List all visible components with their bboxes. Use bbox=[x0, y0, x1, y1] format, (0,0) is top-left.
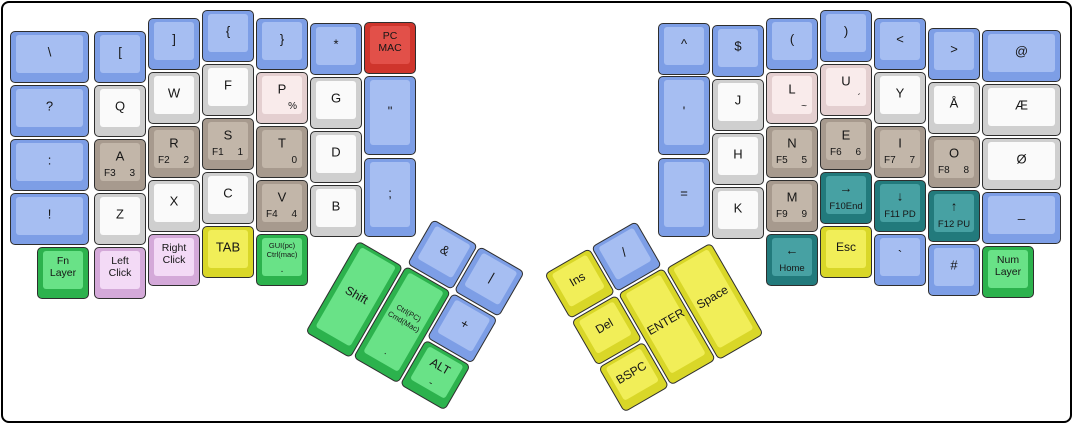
key-legend: H bbox=[719, 147, 757, 162]
key-equals[interactable]: = bbox=[658, 158, 710, 237]
keycap-face: Å bbox=[934, 86, 974, 124]
keycap-face: GUI(pc) Ctrl(mac). bbox=[262, 238, 302, 276]
key-legend: ( bbox=[773, 32, 811, 47]
key-backslash[interactable]: \ bbox=[10, 31, 89, 83]
key-legend: G bbox=[317, 91, 355, 106]
key-right-bracket[interactable]: ] bbox=[148, 18, 200, 70]
key-b[interactable]: B bbox=[310, 185, 362, 237]
keycap-face: \ bbox=[16, 35, 83, 73]
key-sublegend-bottom-right: 4 bbox=[291, 209, 297, 220]
key-legend: Q bbox=[101, 99, 139, 114]
key-sublegend-bottom-left: F5 bbox=[776, 155, 788, 166]
key-sublegend-bottom-center: Home bbox=[772, 263, 812, 274]
key-legend: = bbox=[665, 186, 703, 201]
keycap-face: { bbox=[208, 14, 248, 52]
keycap-face: > bbox=[934, 32, 974, 70]
key-sublegend-bottom-left: F1 bbox=[212, 147, 224, 158]
key-double-quote[interactable]: " bbox=[364, 76, 416, 155]
key-g[interactable]: G bbox=[310, 77, 362, 129]
key-o-slash[interactable]: Ø bbox=[982, 138, 1061, 190]
keycap-face: U´ bbox=[826, 68, 866, 106]
key-sublegend-bottom-right: 3 bbox=[129, 168, 135, 179]
key-tab[interactable]: TAB bbox=[202, 226, 254, 278]
key-legend: ↑ bbox=[935, 199, 973, 214]
keycap-face: PC MAC bbox=[370, 26, 410, 64]
key-sublegend-bottom-left: F3 bbox=[104, 168, 116, 179]
key-legend: Shift bbox=[336, 280, 376, 311]
key-asterisk[interactable]: * bbox=[310, 23, 362, 75]
keycap-face: Y bbox=[880, 76, 920, 114]
keycap-face: ] bbox=[154, 22, 194, 60]
key-colon[interactable]: : bbox=[10, 139, 89, 191]
key-semicolon[interactable]: ; bbox=[364, 158, 416, 237]
key-w[interactable]: W bbox=[148, 72, 200, 124]
key-right-paren[interactable]: ) bbox=[820, 10, 872, 62]
key-legend: ← bbox=[773, 243, 811, 258]
key-f11-pd[interactable]: ↓F11 PD bbox=[874, 180, 926, 232]
key-legend: & bbox=[424, 235, 464, 267]
key-f12-pu[interactable]: ↑F12 PU bbox=[928, 190, 980, 242]
keycap-face: B bbox=[316, 189, 356, 227]
key-legend: Ins bbox=[558, 265, 598, 296]
key-sublegend-bottom-center: . bbox=[366, 337, 406, 367]
key-left-bracket[interactable]: [ bbox=[94, 31, 146, 83]
key-legend: PC MAC bbox=[371, 31, 409, 55]
key-legend: N bbox=[773, 137, 811, 152]
key-l[interactable]: L~ bbox=[766, 72, 818, 124]
keycap-face: Æ bbox=[988, 88, 1055, 126]
keycap-face: < bbox=[880, 22, 920, 60]
key-legend: @ bbox=[989, 44, 1054, 59]
key-at[interactable]: @ bbox=[982, 30, 1061, 82]
key-legend: Space bbox=[693, 282, 733, 313]
key-legend: { bbox=[209, 24, 247, 39]
key-left-click[interactable]: Left Click bbox=[94, 247, 146, 299]
key-legend: BSPC bbox=[612, 358, 652, 389]
key-legend: ↓ bbox=[881, 189, 919, 204]
key-legend: Del bbox=[585, 311, 625, 342]
key-legend: → bbox=[827, 181, 865, 196]
key-legend: ] bbox=[155, 32, 193, 47]
key-legend: \ bbox=[17, 45, 82, 60]
key-less-than[interactable]: < bbox=[874, 18, 926, 70]
key-legend: D bbox=[317, 145, 355, 160]
key-legend: ^ bbox=[665, 37, 703, 52]
key-legend: O bbox=[935, 147, 973, 162]
keycap-face: @ bbox=[988, 34, 1055, 72]
key-j[interactable]: J bbox=[712, 79, 764, 131]
key-y[interactable]: Y bbox=[874, 72, 926, 124]
key-h[interactable]: H bbox=[712, 133, 764, 185]
key-legend: V bbox=[263, 191, 301, 206]
key-num-layer[interactable]: Num Layer bbox=[982, 246, 1034, 298]
keycap-face: : bbox=[16, 143, 83, 181]
key-i[interactable]: IF77 bbox=[874, 126, 926, 178]
keycap-face: Right Click bbox=[154, 238, 194, 276]
key-legend: _ bbox=[989, 206, 1054, 221]
key-legend: P bbox=[263, 83, 301, 98]
keycap-face: ' bbox=[664, 80, 704, 145]
keycap-face: J bbox=[718, 83, 758, 121]
key-legend: | bbox=[471, 262, 511, 294]
keycap-face: G bbox=[316, 81, 356, 119]
key-legend: Esc bbox=[827, 241, 865, 255]
key-apostrophe[interactable]: ' bbox=[658, 76, 710, 155]
key-c[interactable]: C bbox=[202, 172, 254, 224]
keycap-face: Z bbox=[100, 197, 140, 235]
keycap-face: K bbox=[718, 191, 758, 229]
key-caret[interactable]: ^ bbox=[658, 23, 710, 75]
key-sublegend-bottom-right: 0 bbox=[291, 155, 297, 166]
keycap-face: →F10End bbox=[826, 176, 866, 214]
keycap-face: L~ bbox=[772, 76, 812, 114]
key-right-click[interactable]: Right Click bbox=[148, 234, 200, 286]
key-x[interactable]: X bbox=[148, 180, 200, 232]
key-legend: > bbox=[935, 42, 973, 57]
keycap-face: AF33 bbox=[100, 143, 140, 181]
keycap-face: Esc bbox=[826, 230, 866, 268]
key-sublegend-bottom-right: 6 bbox=[855, 147, 861, 158]
keycap-face: ! bbox=[16, 197, 83, 235]
keycap-face: ; bbox=[370, 162, 410, 227]
key-legend: Æ bbox=[989, 98, 1054, 113]
keycap-face: # bbox=[934, 248, 974, 286]
key-m[interactable]: MF99 bbox=[766, 180, 818, 232]
key-legend: ; bbox=[371, 186, 409, 201]
key-legend: I bbox=[881, 137, 919, 152]
keycap-face: D bbox=[316, 135, 356, 173]
key-pc-mac[interactable]: PC MAC bbox=[364, 22, 416, 74]
key-sublegend-bottom-right: 7 bbox=[909, 155, 915, 166]
key-legend: E bbox=[827, 129, 865, 144]
key-right-brace[interactable]: } bbox=[256, 18, 308, 70]
keycap-face: Ø bbox=[988, 142, 1055, 180]
keycap-face: H bbox=[718, 137, 758, 175]
key-d[interactable]: D bbox=[310, 131, 362, 183]
keycap-face: } bbox=[262, 22, 302, 60]
key-home[interactable]: ←Home bbox=[766, 234, 818, 286]
key-esc[interactable]: Esc bbox=[820, 226, 872, 278]
key-k[interactable]: K bbox=[712, 187, 764, 239]
key-sublegend-bottom-left: F8 bbox=[938, 165, 950, 176]
key-hash[interactable]: # bbox=[928, 244, 980, 296]
keycap-face: ` bbox=[880, 238, 920, 276]
key-legend: Right Click bbox=[155, 243, 193, 267]
keycap-face: IF77 bbox=[880, 130, 920, 168]
key-legend: U bbox=[827, 75, 865, 90]
keycap-face: Num Layer bbox=[988, 250, 1028, 288]
keycap-face: [ bbox=[100, 35, 140, 73]
key-sublegend-bottom-right: 2 bbox=[183, 155, 189, 166]
key-legend: B bbox=[317, 199, 355, 214]
key-r[interactable]: RF22 bbox=[148, 126, 200, 178]
key-legend: A bbox=[101, 150, 139, 165]
key-gui-ctrl[interactable]: GUI(pc) Ctrl(mac). bbox=[256, 234, 308, 286]
key-ae[interactable]: Æ bbox=[982, 84, 1061, 136]
keycap-face: ←Home bbox=[772, 238, 812, 276]
keycap-face: C bbox=[208, 176, 248, 214]
key-legend: Num Layer bbox=[989, 255, 1027, 279]
key-legend: W bbox=[155, 86, 193, 101]
key-f[interactable]: F bbox=[202, 64, 254, 116]
key-legend: Z bbox=[101, 207, 139, 222]
key-sublegend-bottom-right: 5 bbox=[801, 155, 807, 166]
keycap-face: VF44 bbox=[262, 184, 302, 222]
key-legend: ? bbox=[17, 99, 82, 114]
key-legend: : bbox=[17, 153, 82, 168]
key-sublegend-bottom-center: . bbox=[262, 264, 302, 275]
keycap-face: NF55 bbox=[772, 130, 812, 168]
key-legend: T bbox=[263, 137, 301, 152]
keycap-face: OF88 bbox=[934, 140, 974, 178]
key-question[interactable]: ? bbox=[10, 85, 89, 137]
key-u[interactable]: U´ bbox=[820, 64, 872, 116]
key-sublegend-bottom-right: 8 bbox=[963, 165, 969, 176]
keycap-face: F bbox=[208, 68, 248, 106]
key-sublegend-bottom-left: F2 bbox=[158, 155, 170, 166]
keycap-face: " bbox=[370, 80, 410, 145]
key-legend: S bbox=[209, 129, 247, 144]
keycap-face: ( bbox=[772, 22, 812, 60]
keycap-face: SF11 bbox=[208, 122, 248, 160]
key-sublegend-bottom-left: F6 bbox=[830, 147, 842, 158]
key-fn-layer[interactable]: Fn Layer bbox=[37, 247, 89, 299]
keycap-face: T0 bbox=[262, 130, 302, 168]
key-legend: L bbox=[773, 83, 811, 98]
key-q[interactable]: Q bbox=[94, 85, 146, 137]
key-legend: K bbox=[719, 201, 757, 216]
key-legend: # bbox=[935, 258, 973, 273]
key-z[interactable]: Z bbox=[94, 193, 146, 245]
key-a[interactable]: AF33 bbox=[94, 139, 146, 191]
key-legend: R bbox=[155, 137, 193, 152]
key-legend: < bbox=[881, 32, 919, 47]
keycap-face: MF99 bbox=[772, 184, 812, 222]
key-legend: * bbox=[317, 37, 355, 52]
key-legend: ! bbox=[17, 207, 82, 222]
key-sublegend-bottom-center: F12 PU bbox=[934, 219, 974, 230]
keycap-face: RF22 bbox=[154, 130, 194, 168]
key-legend: Å bbox=[935, 96, 973, 111]
key-underscore[interactable]: _ bbox=[982, 192, 1061, 244]
keycap-face: * bbox=[316, 27, 356, 65]
keycap-face: = bbox=[664, 162, 704, 227]
key-t[interactable]: T0 bbox=[256, 126, 308, 178]
key-sublegend-bottom-left: F7 bbox=[884, 155, 896, 166]
keycap-face: X bbox=[154, 184, 194, 222]
keycap-face: EF66 bbox=[826, 122, 866, 160]
key-sublegend-bottom-right: % bbox=[288, 101, 297, 112]
keycap-face: TAB bbox=[208, 230, 248, 268]
key-legend: } bbox=[263, 32, 301, 47]
key-sublegend-bottom-center: F11 PD bbox=[880, 209, 920, 220]
key-legend: J bbox=[719, 93, 757, 108]
keyboard-layout: \?:!Fn Layer[QAF33ZLeft Click]WRF22XRigh… bbox=[0, 0, 1073, 424]
key-left-paren[interactable]: ( bbox=[766, 18, 818, 70]
key-legend: Y bbox=[881, 86, 919, 101]
key-legend: Ø bbox=[989, 152, 1054, 167]
key-dollar[interactable]: $ bbox=[712, 25, 764, 77]
key-o[interactable]: OF88 bbox=[928, 136, 980, 188]
key-a-ring[interactable]: Å bbox=[928, 82, 980, 134]
key-p[interactable]: P% bbox=[256, 72, 308, 124]
keycap-face: Q bbox=[100, 89, 140, 127]
keycap-face: ↓F11 PD bbox=[880, 184, 920, 222]
keycap-face: _ bbox=[988, 196, 1055, 234]
key-legend: / bbox=[604, 237, 644, 269]
key-sublegend-bottom-right: ´ bbox=[858, 93, 861, 104]
key-sublegend-bottom-left: F4 bbox=[266, 209, 278, 220]
keycap-face: W bbox=[154, 76, 194, 114]
key-backtick[interactable]: ` bbox=[874, 234, 926, 286]
key-legend: C bbox=[209, 186, 247, 201]
key-legend: TAB bbox=[209, 240, 247, 255]
key-legend: F bbox=[209, 78, 247, 93]
key-legend: [ bbox=[101, 45, 139, 60]
key-legend: ` bbox=[881, 248, 919, 263]
keycap-face: $ bbox=[718, 29, 758, 67]
key-sublegend-bottom-right: ~ bbox=[801, 101, 807, 112]
key-exclamation[interactable]: ! bbox=[10, 193, 89, 245]
key-sublegend-bottom-right: 9 bbox=[801, 209, 807, 220]
key-legend: Left Click bbox=[101, 256, 139, 280]
key-legend: " bbox=[371, 104, 409, 119]
key-legend: ' bbox=[665, 104, 703, 119]
keycap-face: Fn Layer bbox=[43, 251, 83, 289]
key-legend: GUI(pc) Ctrl(mac) bbox=[263, 241, 301, 260]
key-sublegend-bottom-left: F9 bbox=[776, 209, 788, 220]
key-e[interactable]: EF66 bbox=[820, 118, 872, 170]
key-greater-than[interactable]: > bbox=[928, 28, 980, 80]
keycap-face: P% bbox=[262, 76, 302, 114]
keycap-face: ) bbox=[826, 14, 866, 52]
key-s[interactable]: SF11 bbox=[202, 118, 254, 170]
key-legend: + bbox=[444, 309, 484, 341]
keycap-face: ^ bbox=[664, 27, 704, 65]
key-f10-end[interactable]: →F10End bbox=[820, 172, 872, 224]
key-legend: ) bbox=[827, 24, 865, 39]
key-legend: M bbox=[773, 191, 811, 206]
keycap-face: ↑F12 PU bbox=[934, 194, 974, 232]
key-sublegend-bottom-right: 1 bbox=[237, 147, 243, 158]
keycap-face: ? bbox=[16, 89, 83, 127]
key-legend: Fn Layer bbox=[44, 256, 82, 280]
key-v[interactable]: VF44 bbox=[256, 180, 308, 232]
key-legend: $ bbox=[719, 39, 757, 54]
key-legend: Ctrl(PC) Cmd(Mac) bbox=[385, 300, 427, 335]
key-n[interactable]: NF55 bbox=[766, 126, 818, 178]
key-left-brace[interactable]: { bbox=[202, 10, 254, 62]
key-sublegend-bottom-center: F10End bbox=[826, 201, 866, 212]
keycap-face: Left Click bbox=[100, 251, 140, 289]
key-legend: X bbox=[155, 194, 193, 209]
key-legend: ENTER bbox=[645, 308, 685, 339]
